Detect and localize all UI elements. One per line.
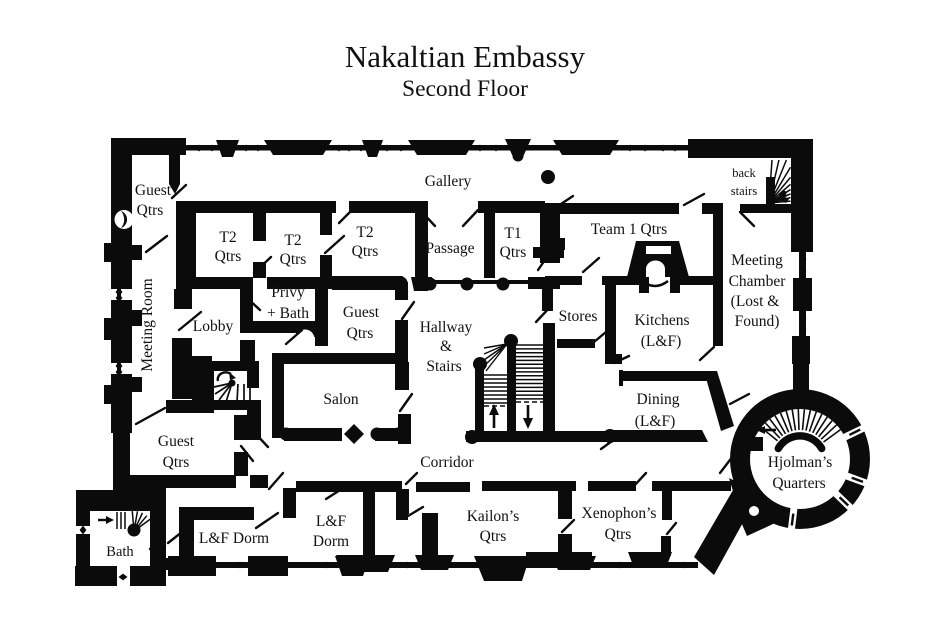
svg-text:T2: T2 [284,232,301,249]
svg-text:(L&F): (L&F) [641,333,681,350]
svg-text:T1: T1 [504,225,521,242]
svg-text:Dorm: Dorm [313,533,349,550]
svg-text:Corridor: Corridor [420,454,474,471]
svg-text:T2: T2 [219,229,236,246]
svg-text:Hjolman’s: Hjolman’s [768,454,833,471]
svg-text:Passage: Passage [425,240,474,257]
svg-text:Salon: Salon [323,391,359,408]
svg-text:Hallway: Hallway [420,319,473,336]
svg-text:T2: T2 [356,224,373,241]
svg-text:(L&F): (L&F) [635,413,675,430]
svg-text:Team 1 Qtrs: Team 1 Qtrs [591,221,667,238]
svg-text:(Lost &: (Lost & [731,293,780,310]
svg-text:Guest: Guest [343,304,380,321]
svg-text:Chamber: Chamber [729,273,787,290]
svg-text:+ Bath: + Bath [267,305,309,322]
svg-text:Dining: Dining [636,391,679,408]
svg-text:Kailon’s: Kailon’s [467,508,520,525]
svg-text:Stairs: Stairs [426,358,461,375]
svg-text:Xenophon’s: Xenophon’s [582,505,657,522]
svg-text:Qtrs: Qtrs [605,526,632,543]
svg-text:Stores: Stores [559,308,598,325]
svg-text:Quarters: Quarters [772,475,825,492]
svg-text:Qtrs: Qtrs [480,528,507,545]
svg-text:Qtrs: Qtrs [347,325,374,342]
svg-text:Qtrs: Qtrs [352,243,379,260]
svg-text:Found): Found) [735,313,780,330]
svg-text:Qtrs: Qtrs [163,454,190,471]
svg-text:Qtrs: Qtrs [215,248,242,265]
svg-text:Privy: Privy [271,284,305,301]
svg-text:stairs: stairs [731,184,758,198]
svg-text:back: back [732,166,756,180]
svg-text:Second Floor: Second Floor [402,76,528,102]
svg-text:Bath: Bath [106,544,134,560]
svg-text:L&F Dorm: L&F Dorm [199,530,269,547]
svg-text:Meeting Room: Meeting Room [139,278,156,371]
svg-text:Nakaltian Embassy: Nakaltian Embassy [345,39,586,74]
svg-text:Guest: Guest [135,182,172,199]
svg-text:Meeting: Meeting [731,252,783,269]
svg-text:Guest: Guest [158,433,195,450]
svg-text:L&F: L&F [316,513,347,530]
svg-text:Qtrs: Qtrs [280,251,307,268]
svg-text:Qtrs: Qtrs [137,202,164,219]
svg-text:&: & [440,338,452,355]
svg-text:Lobby: Lobby [193,318,234,335]
svg-text:Gallery: Gallery [425,173,472,190]
svg-text:Qtrs: Qtrs [500,244,527,261]
svg-text:Kitchens: Kitchens [634,312,689,329]
